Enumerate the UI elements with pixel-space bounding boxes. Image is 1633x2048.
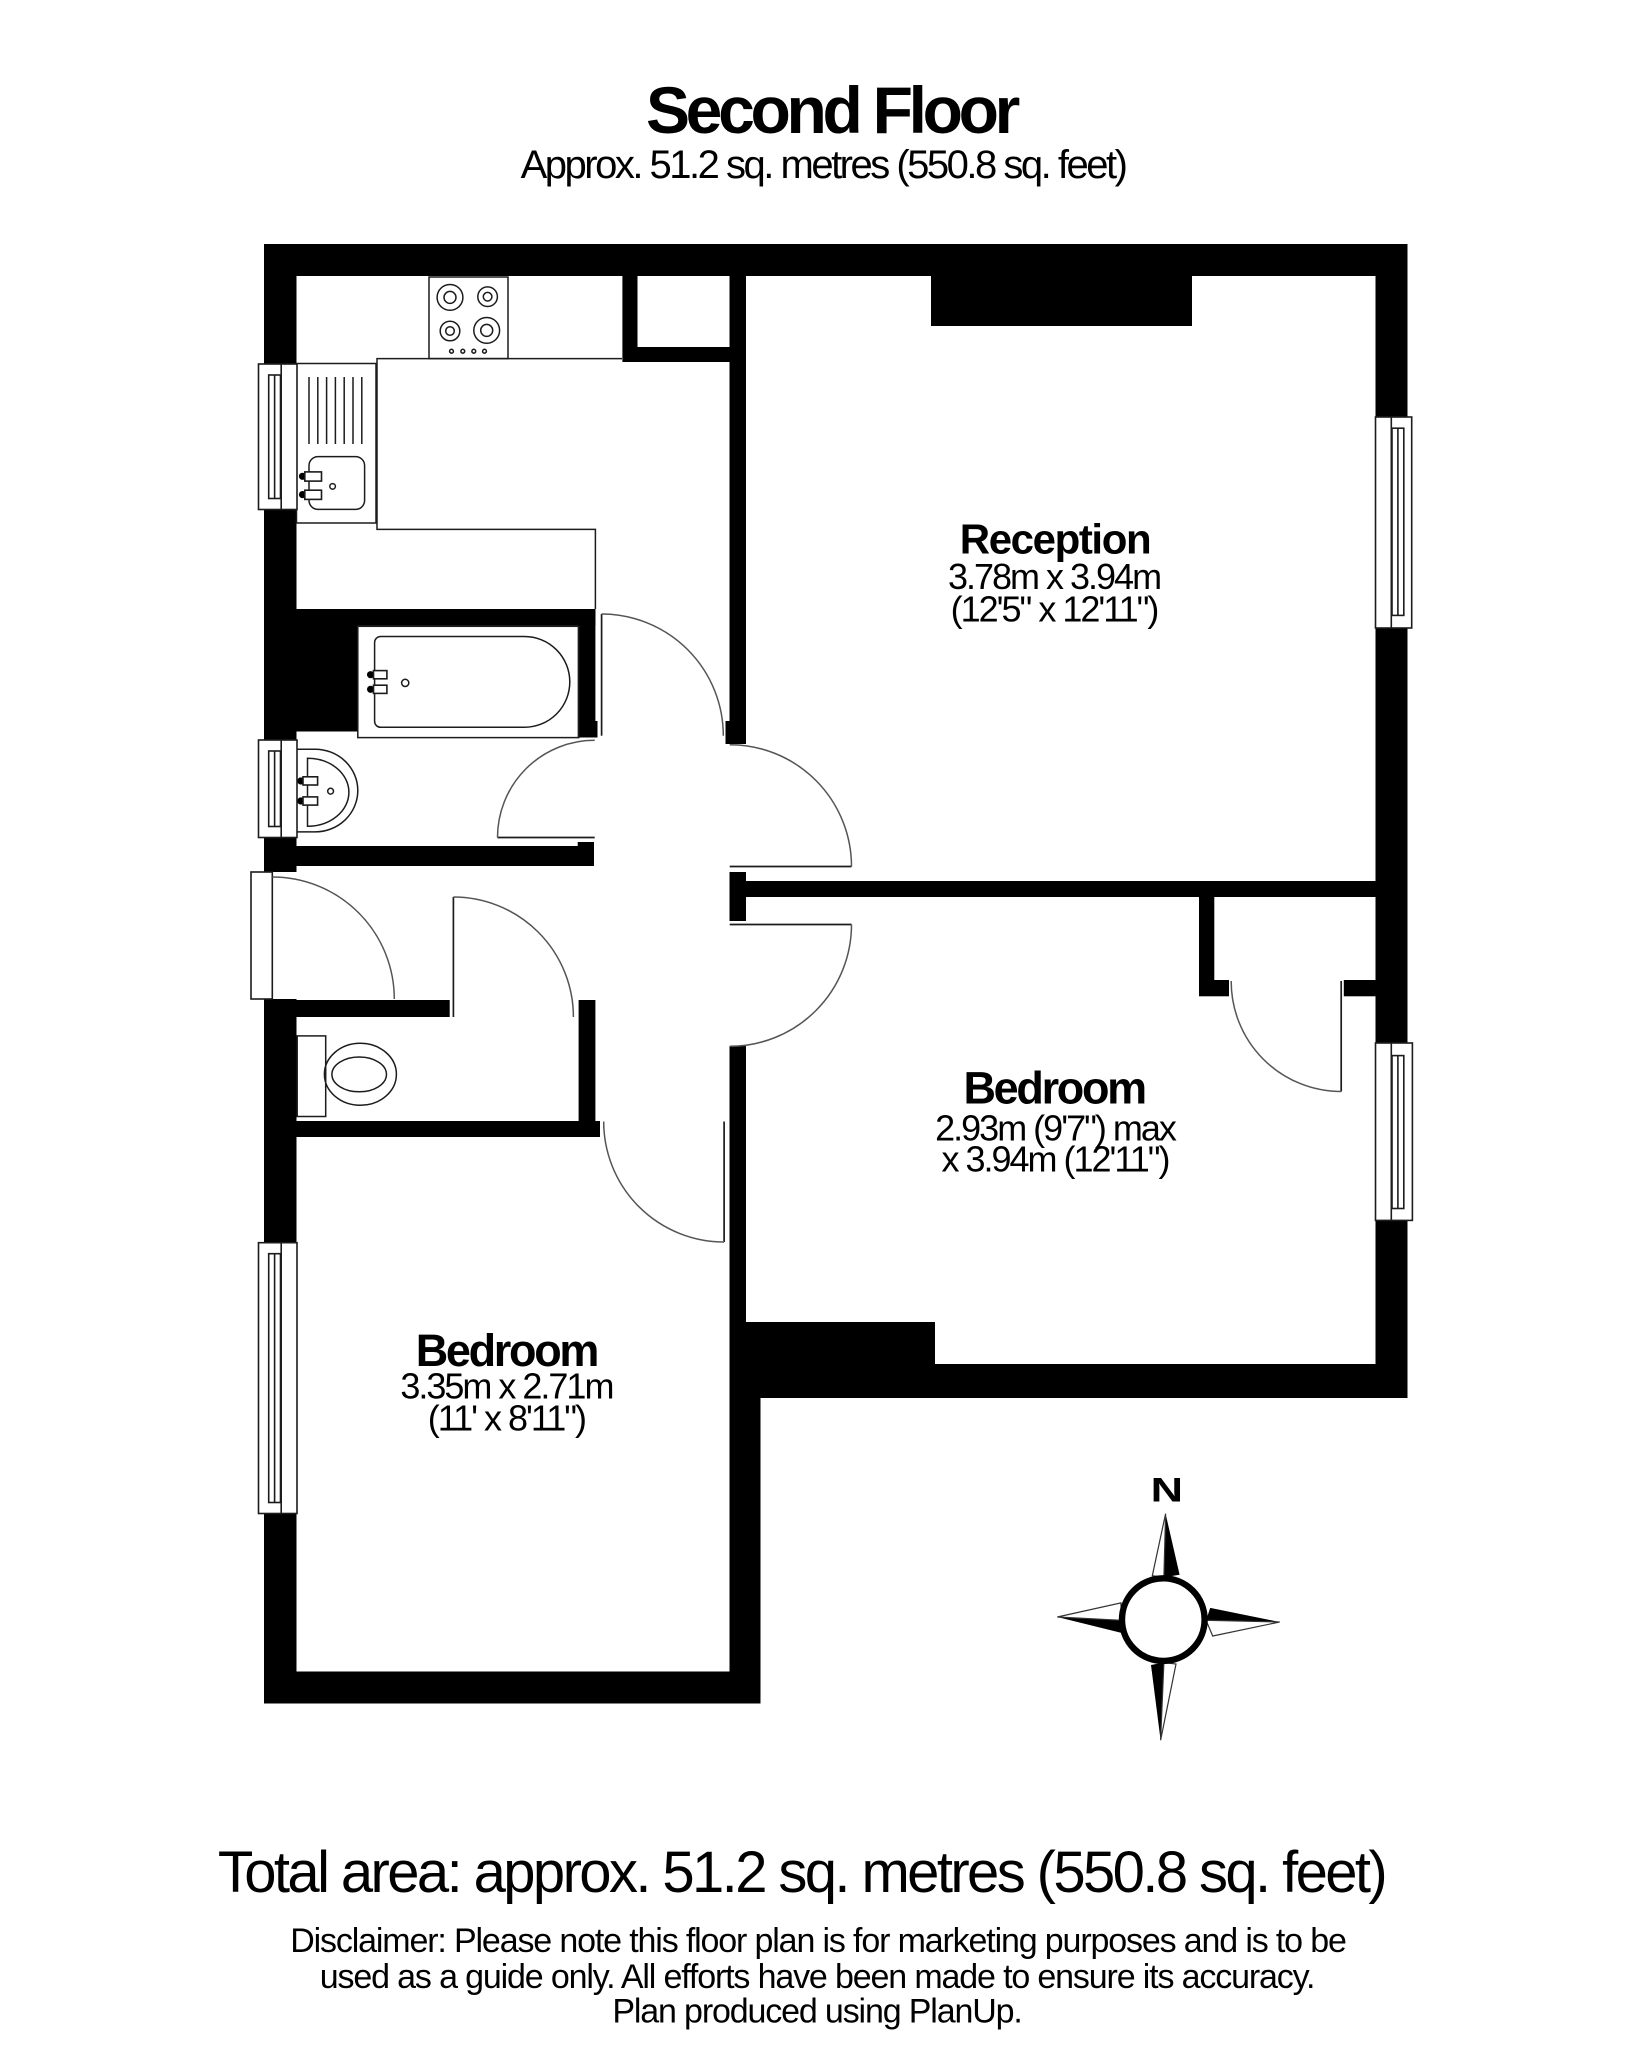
- svg-text:Disclaimer: Please note this f: Disclaimer: Please note this floor plan …: [290, 1922, 1346, 1960]
- svg-text:Plan produced using PlanUp.: Plan produced using PlanUp.: [612, 1993, 1021, 2031]
- svg-text:Bedroom: Bedroom: [963, 1062, 1145, 1113]
- svg-text:Total area: approx. 51.2 sq. m: Total area: approx. 51.2 sq. metres (550…: [218, 1840, 1385, 1905]
- svg-text:Approx. 51.2 sq. metres (550.8: Approx. 51.2 sq. metres (550.8 sq. feet): [521, 143, 1126, 187]
- svg-text:N: N: [1151, 1471, 1183, 1509]
- svg-text:used as a guide only. All effo: used as a guide only. All efforts have b…: [320, 1958, 1315, 1996]
- svg-text:(11' x 8'11"): (11' x 8'11"): [428, 1398, 585, 1439]
- svg-text:Second Floor: Second Floor: [646, 73, 1020, 147]
- svg-text:x 3.94m (12'11"): x 3.94m (12'11"): [941, 1139, 1168, 1180]
- svg-text:(12'5" x 12'11"): (12'5" x 12'11"): [951, 588, 1158, 629]
